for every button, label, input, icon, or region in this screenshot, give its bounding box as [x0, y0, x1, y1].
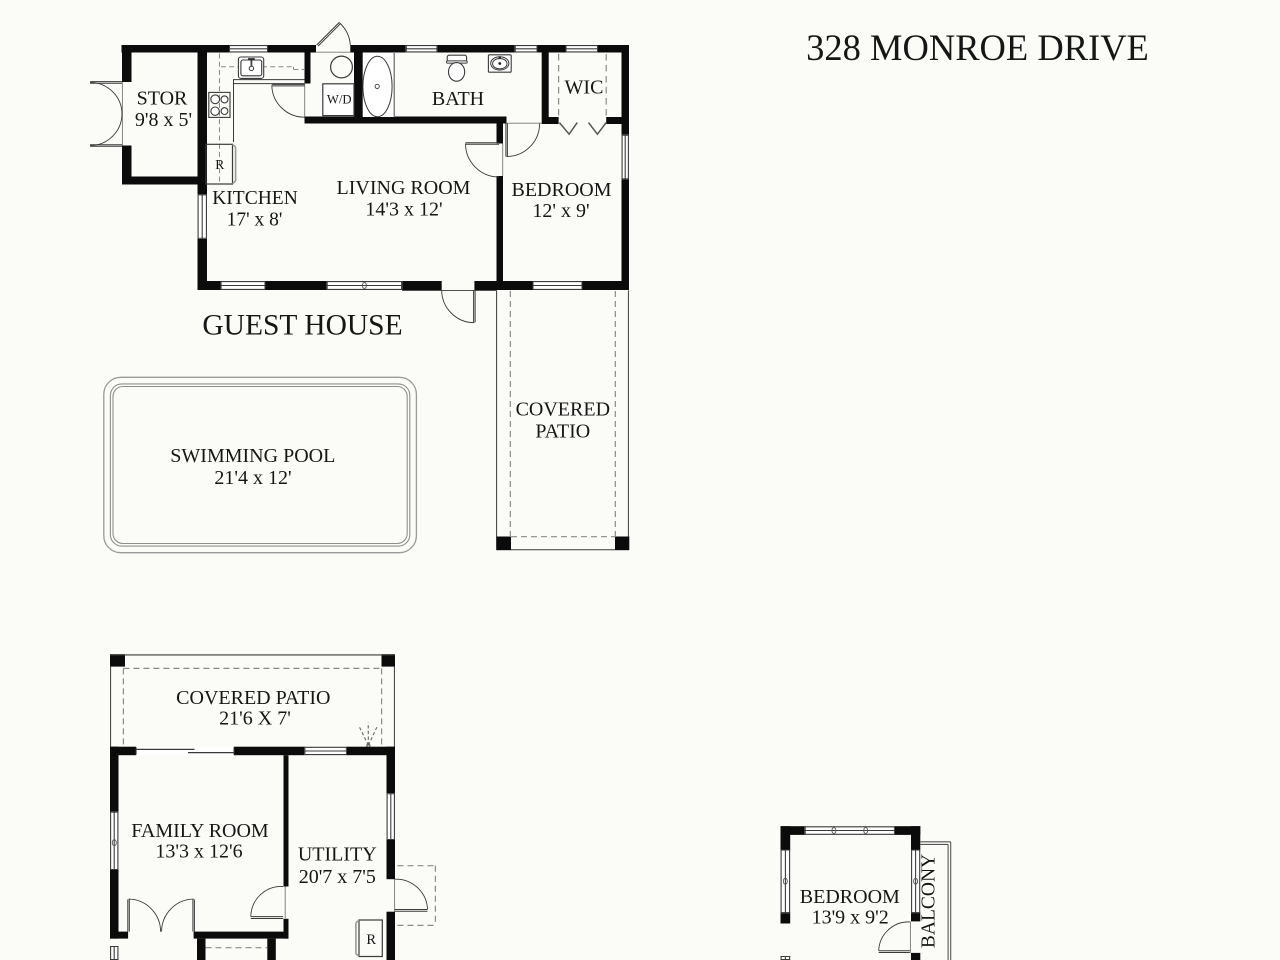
svg-text:GUEST HOUSE: GUEST HOUSE	[202, 310, 402, 342]
svg-text:328 MONROE DRIVE: 328 MONROE DRIVE	[806, 27, 1149, 68]
svg-text:9'8 x 5': 9'8 x 5'	[135, 109, 192, 131]
svg-text:FAMILY ROOM: FAMILY ROOM	[131, 820, 269, 842]
svg-text:17' x 8': 17' x 8'	[227, 210, 283, 231]
svg-text:COVERED PATIO: COVERED PATIO	[176, 687, 330, 709]
svg-text:WIC: WIC	[565, 77, 604, 99]
svg-text:UTILITY: UTILITY	[298, 843, 377, 865]
svg-text:W/D: W/D	[327, 92, 352, 106]
svg-text:21'4 x 12': 21'4 x 12'	[214, 467, 291, 489]
svg-text:LIVING ROOM: LIVING ROOM	[337, 177, 471, 199]
svg-text:14'3 x 12': 14'3 x 12'	[365, 199, 442, 221]
svg-text:BEDROOM: BEDROOM	[511, 179, 611, 201]
svg-text:BATH: BATH	[432, 88, 484, 110]
svg-text:KITCHEN: KITCHEN	[212, 188, 298, 209]
svg-text:PATIO: PATIO	[535, 421, 590, 443]
svg-text:13'3 x 12'6: 13'3 x 12'6	[155, 841, 242, 863]
svg-text:R: R	[215, 157, 224, 172]
svg-text:COVERED: COVERED	[516, 399, 610, 421]
svg-text:STOR: STOR	[137, 88, 188, 110]
svg-text:21'6 X 7': 21'6 X 7'	[219, 707, 291, 729]
svg-text:12' x 9': 12' x 9'	[532, 200, 589, 222]
svg-text:13'9 x 9'2: 13'9 x 9'2	[812, 906, 889, 928]
svg-text:20'7 x 7'5: 20'7 x 7'5	[299, 866, 376, 888]
svg-text:SWIMMING POOL: SWIMMING POOL	[170, 445, 335, 467]
svg-text:BEDROOM: BEDROOM	[800, 886, 900, 908]
svg-text:R: R	[366, 932, 376, 948]
svg-text:BALCONY: BALCONY	[918, 854, 939, 948]
